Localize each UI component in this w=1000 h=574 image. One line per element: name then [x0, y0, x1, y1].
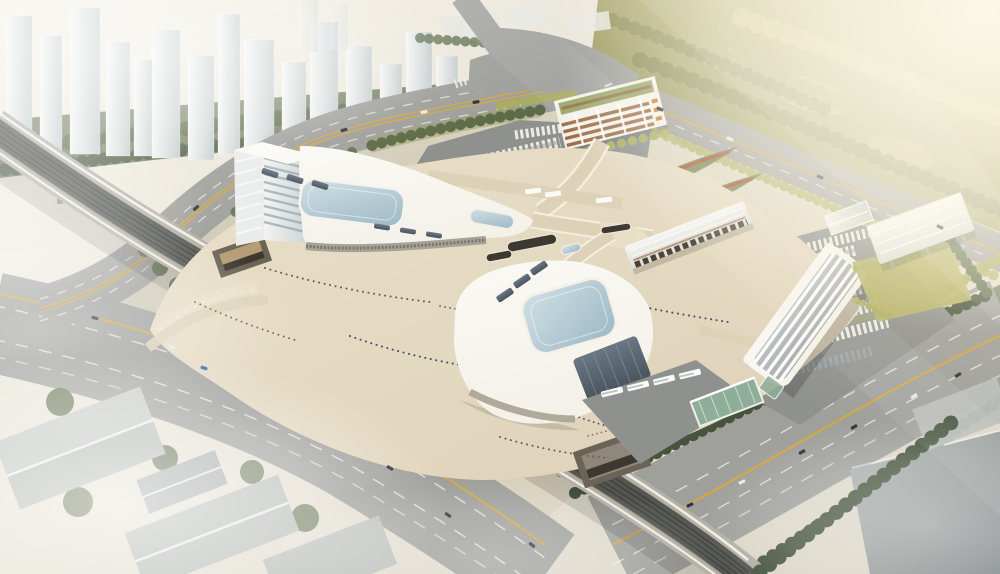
- rendering-canvas: [0, 0, 1000, 574]
- aerial-rendering: [0, 0, 1000, 574]
- atmosphere: [0, 0, 1000, 574]
